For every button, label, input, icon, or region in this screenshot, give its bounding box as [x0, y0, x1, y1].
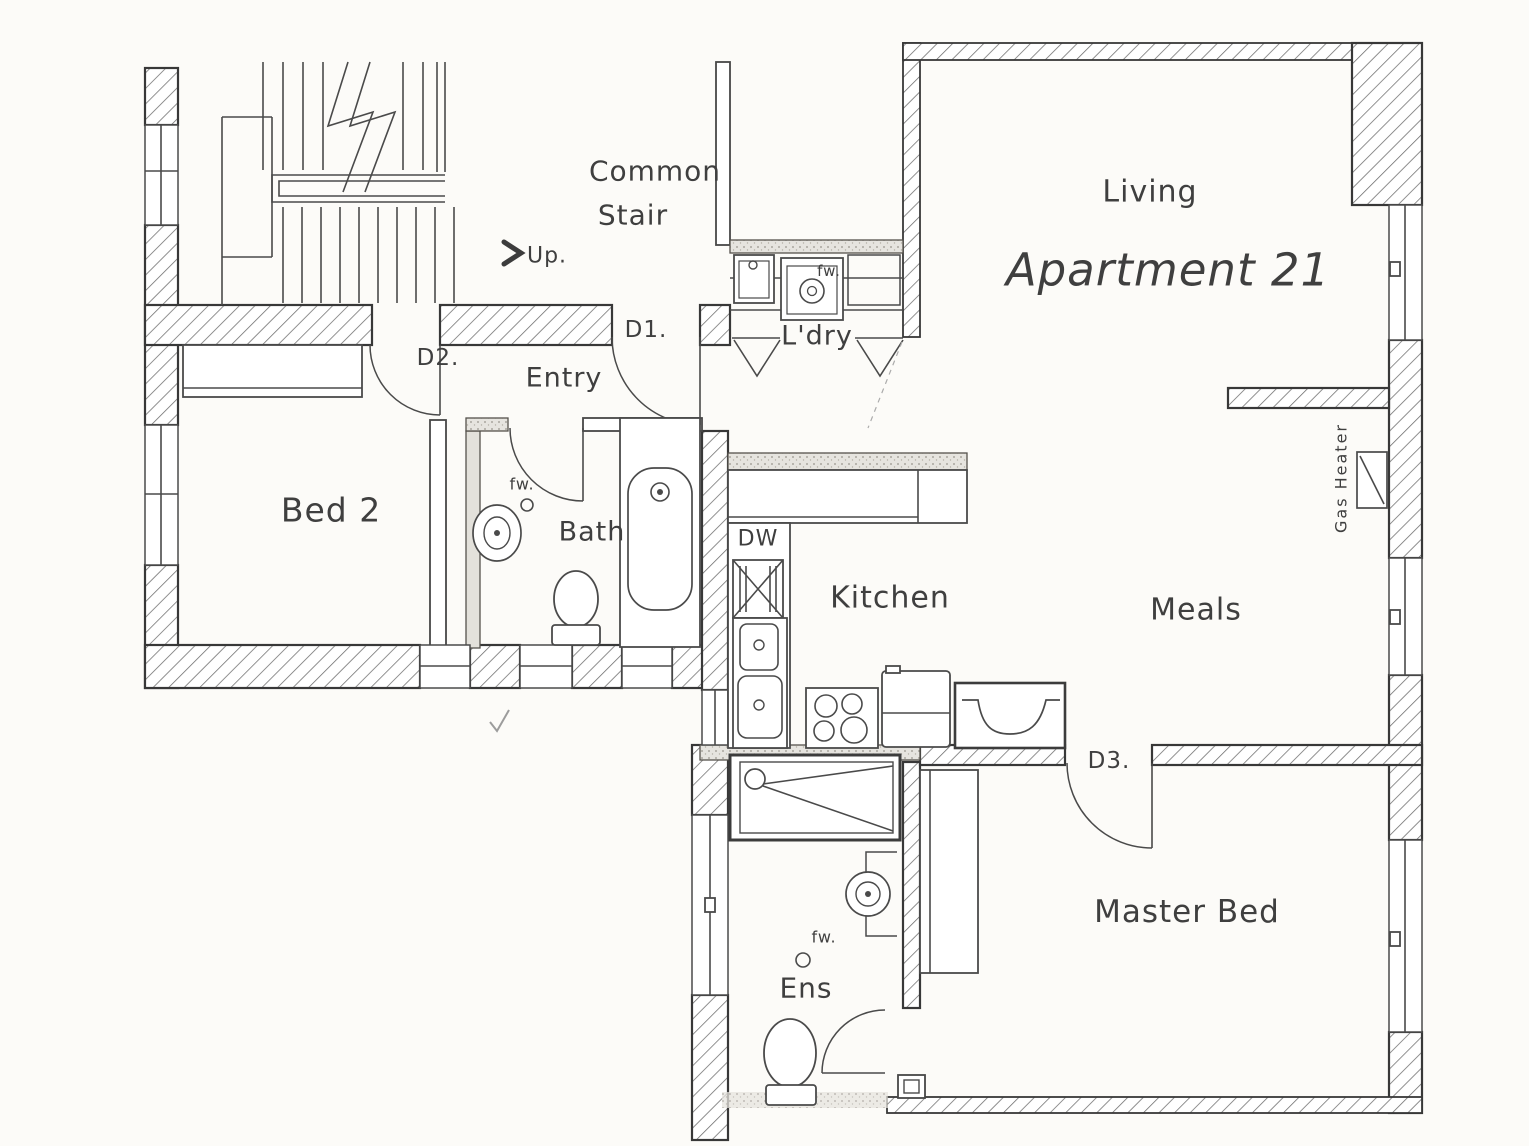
kitchen-sink — [733, 618, 787, 748]
room-label-bed2: Bed 2 — [281, 491, 381, 530]
floor-plan-drawing — [0, 0, 1529, 1146]
windows-bath-sill — [420, 645, 672, 688]
door-ensuite — [822, 1010, 885, 1073]
up-arrow-icon — [504, 242, 521, 264]
room-label-living: Living — [1102, 175, 1197, 210]
gas-heater — [1357, 452, 1387, 508]
room-label-common-stair-line2: Stair — [598, 199, 668, 232]
bed2-wardrobe — [183, 345, 362, 397]
bath-floor-waste-icon — [521, 499, 533, 511]
room-label-laundry: L'dry — [781, 321, 853, 352]
window-master — [1389, 840, 1422, 1032]
gas-heater-label: Gas Heater — [1332, 423, 1351, 533]
window-ensuite — [692, 815, 728, 995]
floor-waste-label-bath: fw. — [509, 475, 534, 494]
floor-waste-label-laundry: fw. — [817, 262, 841, 280]
door-label-d2: D2. — [417, 345, 460, 371]
laundry-trough — [955, 683, 1065, 748]
door-label-d3: D3. — [1088, 748, 1131, 774]
window-living — [1389, 205, 1422, 340]
floor-plan: Common Stair Up. Living Apartment 21 D1.… — [0, 0, 1529, 1146]
bath-toilet — [552, 571, 600, 645]
laundry-bifold-doors — [732, 338, 903, 428]
ensuite-floor-waste-icon — [796, 953, 810, 967]
room-label-kitchen: Kitchen — [830, 581, 950, 616]
laundry-bench — [848, 255, 900, 305]
up-label: Up. — [527, 244, 567, 269]
common-stairs — [222, 62, 454, 305]
room-label-common-stair-line1: Common — [589, 155, 721, 188]
window-bath-side — [702, 690, 728, 745]
room-label-meals: Meals — [1150, 593, 1242, 628]
door-d3 — [1067, 763, 1152, 848]
bathtub — [620, 418, 700, 647]
master-wardrobe — [920, 770, 978, 973]
floor-waste-label-ensuite: fw. — [811, 928, 836, 947]
ensuite-basin — [846, 852, 897, 936]
check-mark — [490, 710, 509, 731]
bath-basin — [473, 505, 521, 561]
cooktop — [806, 688, 878, 748]
window-stair — [145, 125, 178, 225]
window-bed2 — [145, 425, 178, 565]
dishwasher-label: DW — [738, 527, 779, 552]
door-label-d1: D1. — [625, 317, 668, 343]
shower — [730, 755, 900, 840]
refrigerator — [882, 666, 950, 747]
unit-title: Apartment 21 — [1006, 244, 1330, 297]
ensuite-toilet — [764, 1019, 816, 1105]
room-label-ensuite: Ens — [779, 972, 832, 1005]
window-meals — [1389, 558, 1422, 675]
laundry-sink — [734, 255, 774, 303]
door-d1 — [612, 337, 700, 425]
dishwasher — [733, 560, 783, 618]
room-label-bath: Bath — [559, 517, 626, 548]
room-label-master-bed: Master Bed — [1094, 894, 1280, 930]
room-label-entry: Entry — [526, 363, 603, 394]
